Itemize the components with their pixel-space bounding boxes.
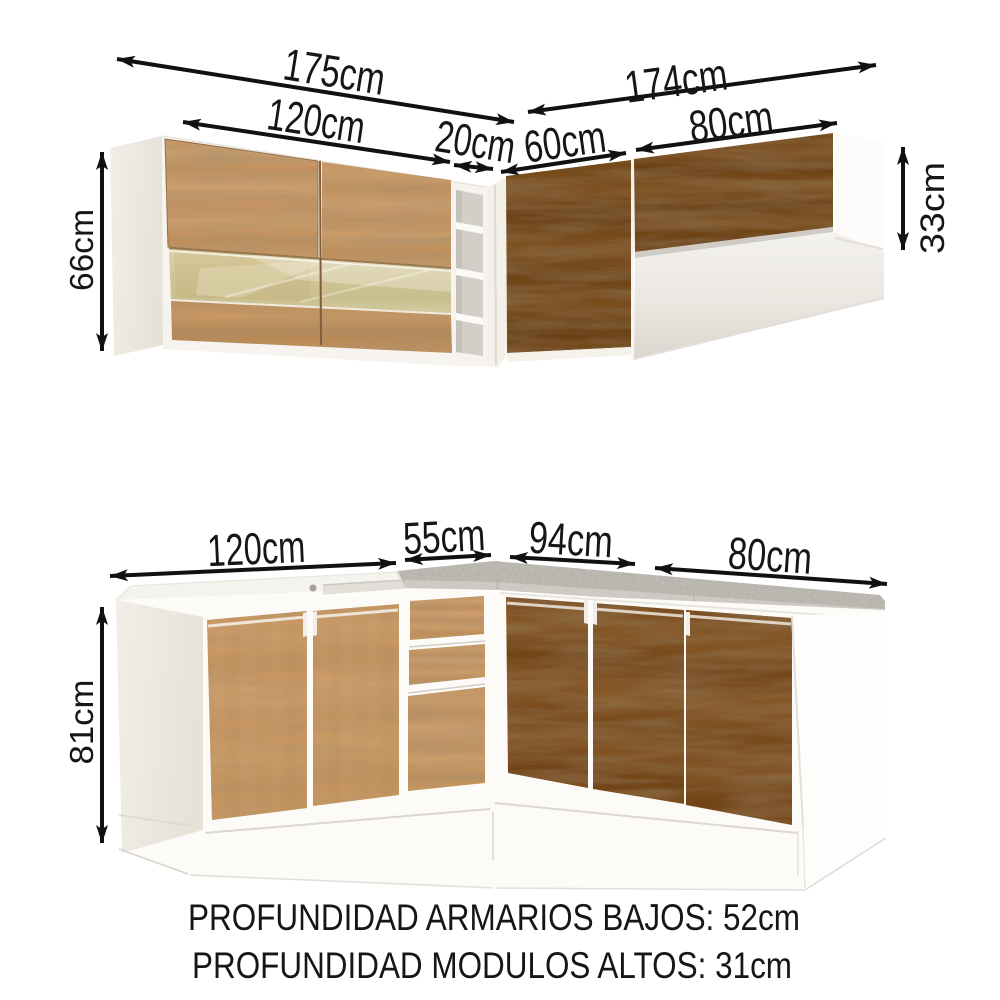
svg-text:33cm: 33cm [914, 162, 952, 254]
svg-text:PROFUNDIDAD MODULOS ALTOS: 31c: PROFUNDIDAD MODULOS ALTOS: 31cm [192, 945, 792, 986]
svg-text:94cm: 94cm [528, 512, 615, 568]
svg-text:60cm: 60cm [521, 111, 609, 173]
svg-text:66cm: 66cm [63, 209, 100, 291]
svg-text:PROFUNDIDAD ARMARIOS BAJOS: 52: PROFUNDIDAD ARMARIOS BAJOS: 52cm [188, 897, 800, 938]
svg-text:80cm: 80cm [726, 527, 813, 584]
svg-text:120cm: 120cm [206, 521, 306, 576]
svg-text:81cm: 81cm [63, 680, 100, 765]
svg-text:55cm: 55cm [402, 509, 487, 564]
